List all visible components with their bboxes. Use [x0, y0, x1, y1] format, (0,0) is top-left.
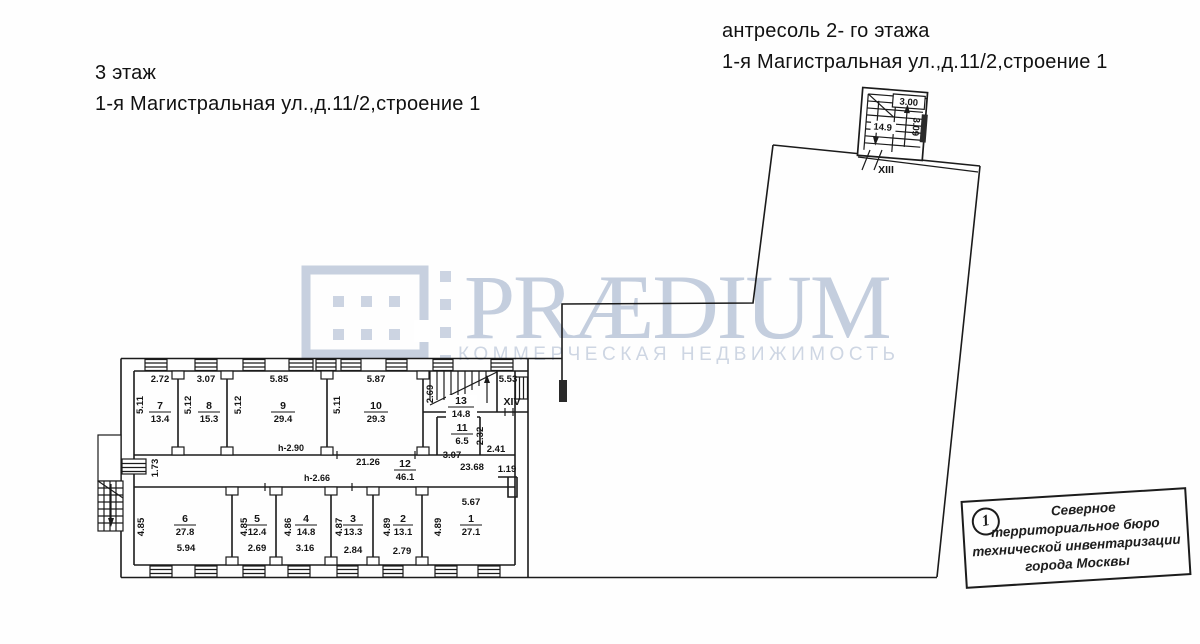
room3-number: 3	[350, 513, 356, 525]
room5-number: 5	[254, 513, 260, 525]
room3-area: 13.3	[344, 527, 363, 538]
floor3-label: 3 этаж	[95, 58, 481, 89]
room4-number: 4	[303, 513, 309, 525]
dim-corridor-d2: 23.68	[460, 462, 484, 473]
room8-area: 15.3	[200, 414, 219, 425]
stairwell-xiii-label: XIII	[878, 164, 894, 176]
dim-room1-height: 4.89	[433, 518, 444, 537]
dim-room13-width: 5.53	[499, 374, 518, 385]
dim-room9-height: 5.12	[233, 396, 244, 415]
room8-number: 8	[206, 400, 212, 412]
room1-area: 27.1	[462, 527, 481, 538]
dim-room5-width: 2.69	[248, 543, 267, 554]
room9-number: 9	[280, 400, 286, 412]
floor3-address: 1-я Магистральная ул.,д.11/2,строение 1	[95, 89, 481, 120]
stair-landing-xiv-label: XIV	[504, 396, 521, 408]
corridor-ceiling-height: h-2.66	[304, 473, 330, 483]
dim-room10-width: 5.87	[367, 374, 386, 385]
dim-room2-height: 4.89	[382, 518, 393, 537]
room9-area: 29.4	[274, 414, 293, 425]
bti-stamp: 1 Северное территориальное бюро техничес…	[961, 487, 1192, 589]
dim-room7-height: 5.11	[135, 395, 146, 414]
dim-room10-height: 5.11	[332, 395, 343, 414]
room4-area: 14.8	[297, 527, 316, 538]
dim-room8-width: 3.07	[197, 374, 216, 385]
dim-room2-width: 2.79	[393, 546, 412, 557]
room10-number: 10	[370, 400, 382, 412]
room7-number: 7	[157, 400, 163, 412]
xiii-dim-run: 3.09	[909, 117, 921, 136]
room5-area: 12.4	[248, 527, 267, 538]
dim-room11-height: 2.32	[475, 427, 486, 446]
dim-room13-height: 2.69	[425, 385, 436, 404]
room10-area: 29.3	[367, 414, 386, 425]
dim-room1-width: 5.67	[462, 497, 481, 508]
room1-number: 1	[468, 513, 474, 525]
dim-room8-height: 5.12	[183, 396, 194, 415]
dim-room6-width: 5.94	[177, 543, 196, 554]
exterior-stair-left	[98, 435, 146, 531]
dim-room11-width: 3.07	[443, 450, 462, 461]
dim-room4-width: 3.16	[296, 543, 315, 554]
corridor-area: 46.1	[396, 472, 415, 483]
mezzanine-label: антресоль 2- го этажа	[722, 16, 1108, 47]
room7-area: 13.4	[151, 414, 170, 425]
xiii-dim-mid: 14.9	[873, 121, 892, 133]
title-floor3: 3 этаж 1-я Магистральная ул.,д.11/2,стро…	[95, 58, 481, 120]
windows-top	[145, 360, 513, 371]
windows-bottom	[150, 566, 500, 577]
scanned-floor-plan-page: PRÆDIUM КОММЕРЧЕСКАЯ НЕДВИЖИМОСТЬ 3 этаж…	[0, 0, 1200, 644]
dim-corridor-d1: 21.26	[356, 457, 380, 468]
room13-number: 13	[455, 395, 467, 407]
dim-room4-height: 4.86	[283, 518, 294, 537]
room6-area: 27.8	[176, 527, 195, 538]
room11-number: 11	[456, 422, 467, 434]
room11-area: 6.5	[455, 436, 469, 447]
room6-number: 6	[182, 513, 188, 525]
title-mezzanine: антресоль 2- го этажа 1-я Магистральная …	[722, 16, 1108, 78]
dim-room7-width: 2.72	[151, 374, 170, 385]
dim-room9-width: 5.85	[270, 374, 289, 385]
dim-corridor-d3: 1.19	[498, 464, 517, 475]
room13-area: 14.8	[452, 409, 471, 420]
stamp-text: Северное территориальное бюро техническо…	[963, 494, 1189, 579]
dim-corridor-d4: 1.73	[150, 459, 161, 478]
dim-room6-height: 4.85	[136, 517, 147, 536]
room2-number: 2	[400, 513, 406, 525]
room9-ceiling-height: h-2.90	[278, 443, 304, 453]
dim-room11-side: 2.41	[487, 444, 506, 455]
corridor-number: 12	[399, 458, 411, 470]
dim-room3-width: 2.84	[344, 545, 363, 556]
xiii-dim-rise: 3.00	[899, 96, 918, 108]
mezzanine-address: 1-я Магистральная ул.,д.11/2,строение 1	[722, 47, 1108, 78]
room2-area: 13.1	[394, 527, 413, 538]
stairwell-xiii: 3.00 14.9 3.09	[857, 88, 929, 161]
